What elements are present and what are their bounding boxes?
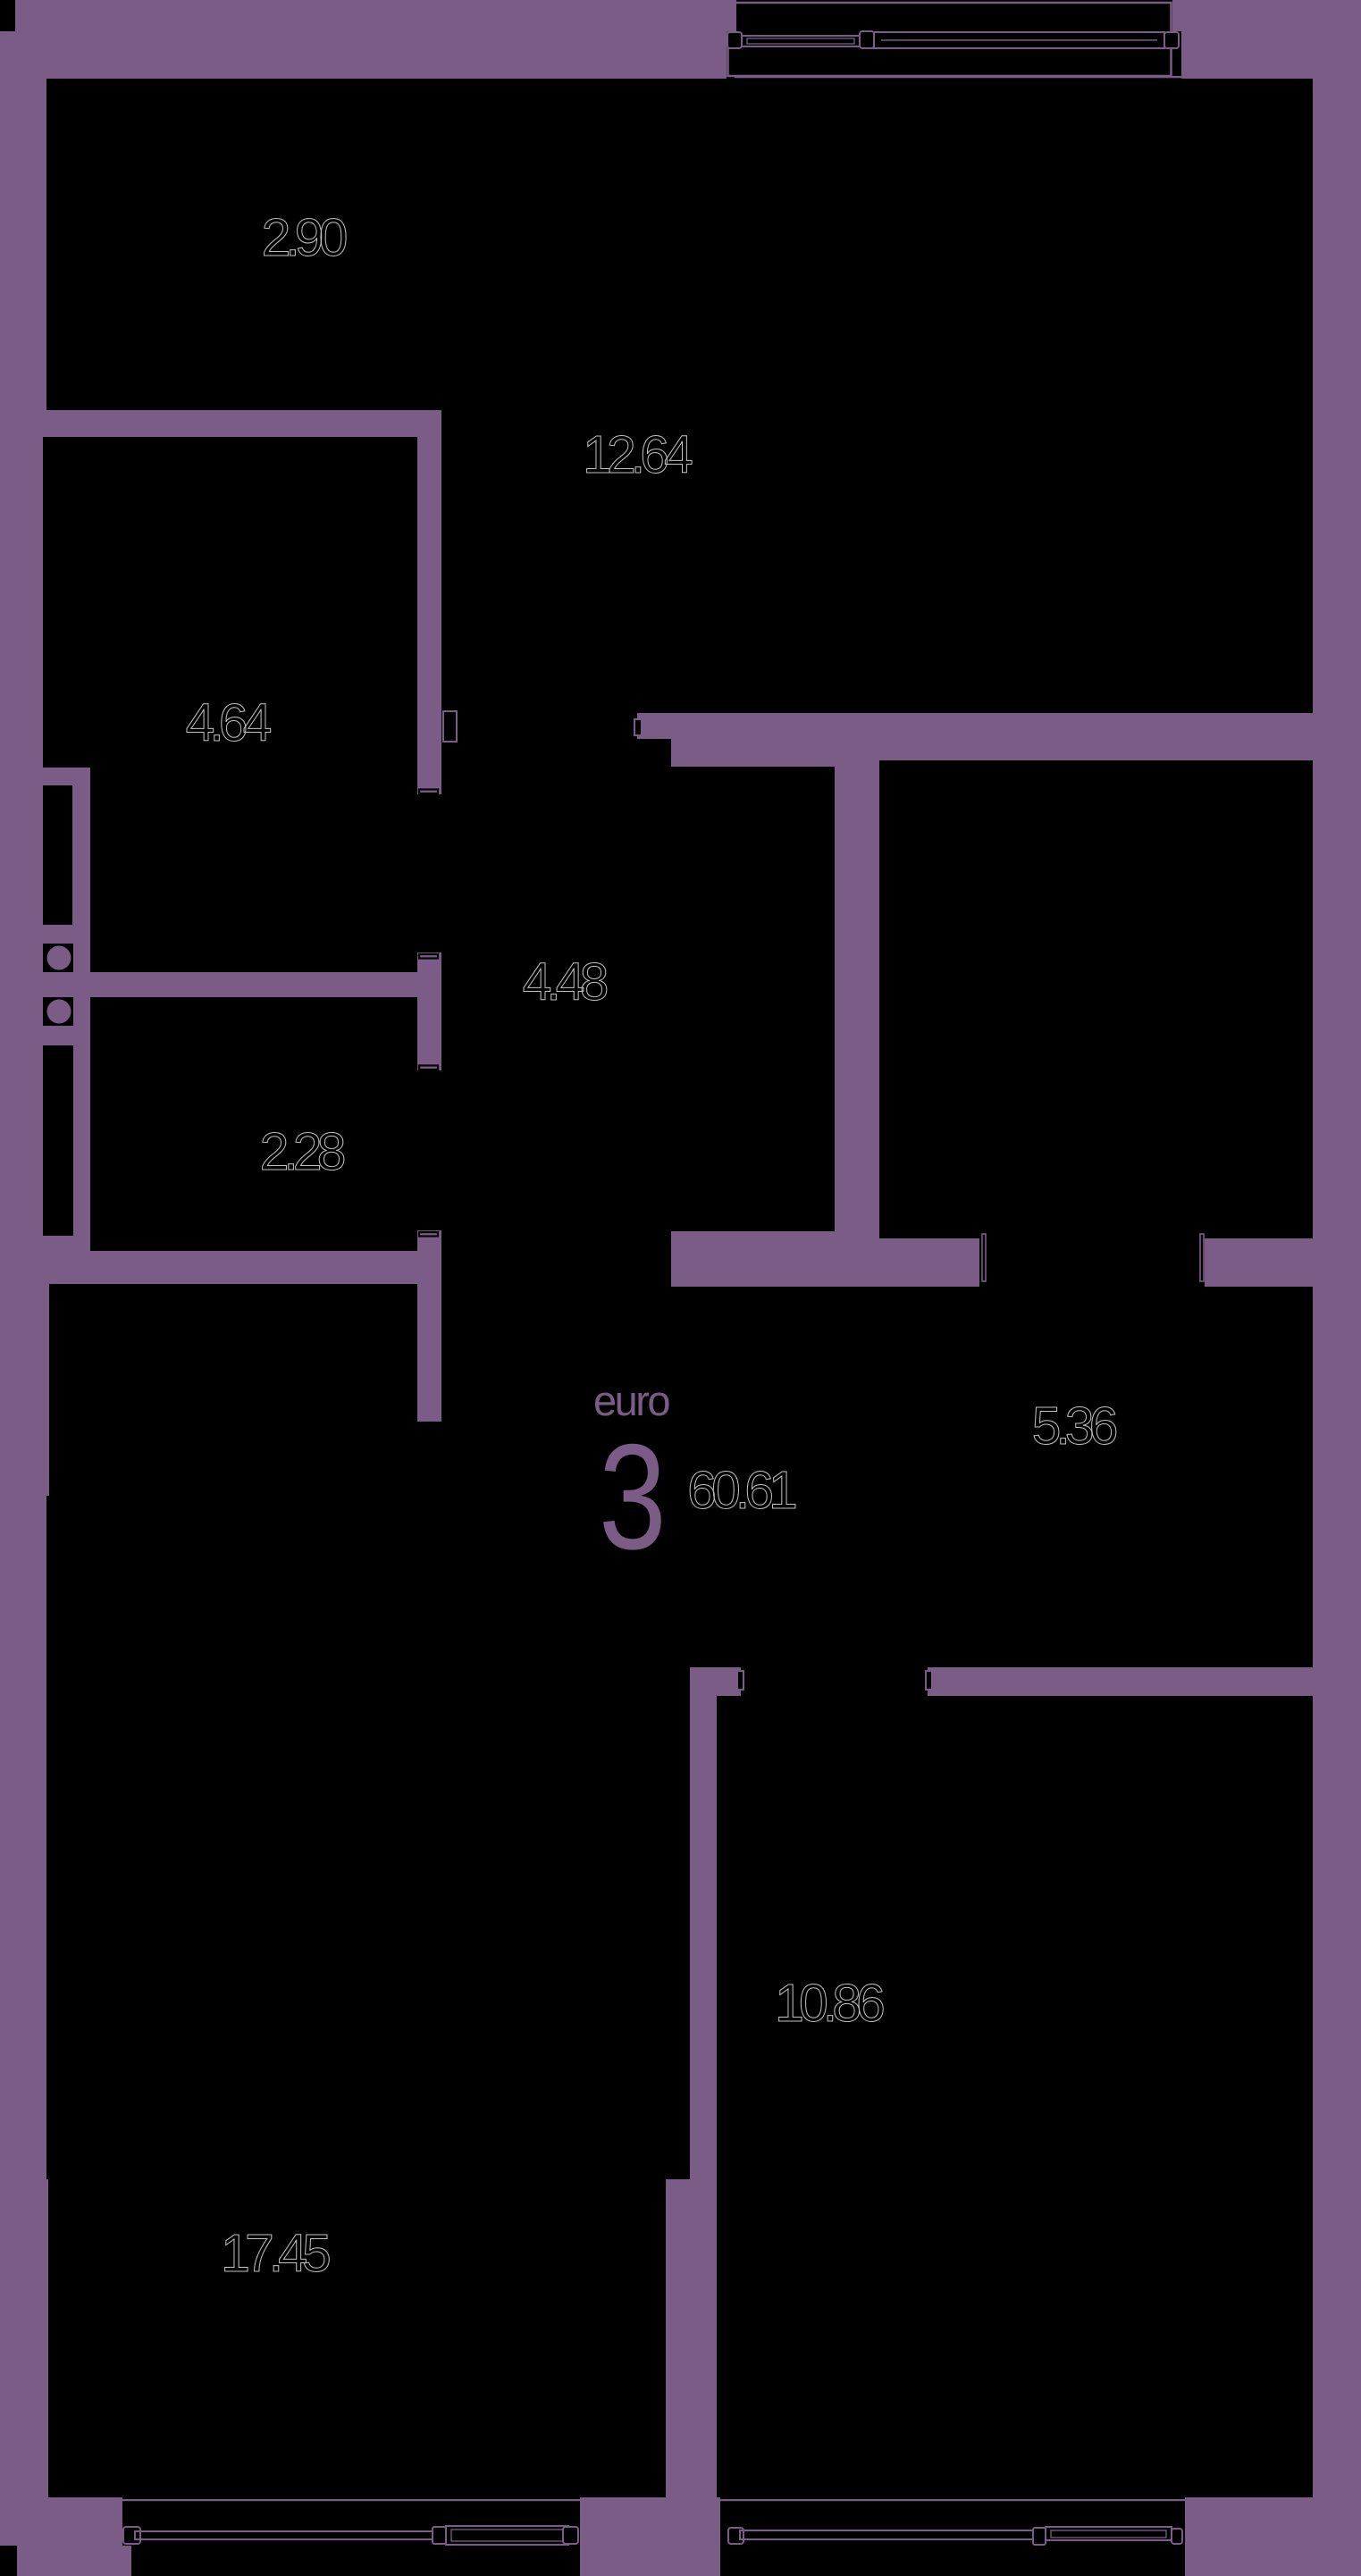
svg-text:4.48: 4.48 (523, 952, 608, 1011)
svg-text:2.90: 2.90 (262, 208, 347, 267)
svg-text:4.64: 4.64 (186, 693, 272, 752)
svg-text:5.36: 5.36 (1032, 1397, 1117, 1456)
svg-text:12.64: 12.64 (583, 425, 693, 484)
svg-text:3: 3 (599, 1414, 667, 1581)
svg-text:60.61: 60.61 (687, 1461, 795, 1520)
svg-text:2.28: 2.28 (260, 1122, 345, 1181)
svg-text:17.45: 17.45 (221, 2224, 330, 2283)
svg-text:10.86: 10.86 (775, 1974, 884, 2033)
